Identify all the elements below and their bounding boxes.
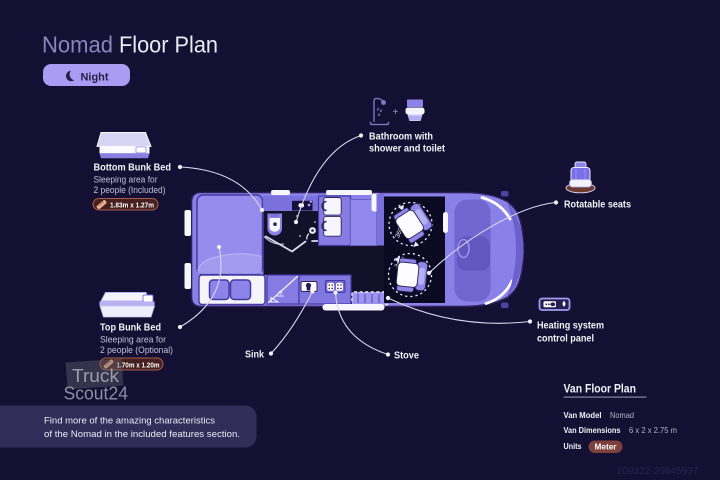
svg-text:2 people (Optional): 2 people (Optional): [100, 345, 173, 355]
svg-text:2 people (Included): 2 people (Included): [94, 185, 166, 195]
svg-text:Night: Night: [81, 72, 109, 84]
svg-text:Scout24: Scout24: [64, 383, 129, 404]
svg-text:of the Nomad in the included f: of the Nomad in the included features se…: [44, 429, 240, 440]
svg-text:control panel: control panel: [537, 334, 594, 345]
svg-text:1.83m x 1.27m: 1.83m x 1.27m: [110, 201, 154, 210]
svg-text:Sleeping area for: Sleeping area for: [100, 335, 166, 345]
svg-text:209322-20845937: 209322-20845937: [617, 466, 699, 477]
svg-text:Sleeping area for: Sleeping area for: [94, 175, 158, 185]
svg-text:NomadFloor Plan: NomadFloor Plan: [42, 32, 218, 58]
svg-text:Van Floor Plan: Van Floor Plan: [564, 382, 637, 396]
svg-text:Sink: Sink: [245, 350, 264, 361]
svg-text:shower and toilet: shower and toilet: [369, 144, 446, 155]
svg-text:Bathroom with: Bathroom with: [369, 132, 433, 143]
svg-text:Bottom Bunk Bed: Bottom Bunk Bed: [94, 163, 172, 174]
svg-text:Stove: Stove: [394, 351, 419, 362]
svg-text:1.70m x 1.20m: 1.70m x 1.20m: [117, 361, 160, 370]
svg-text:Heating system: Heating system: [537, 321, 604, 332]
svg-text:Rotatable seats: Rotatable seats: [564, 200, 631, 211]
svg-text:Van Model: Van Model: [564, 410, 602, 420]
svg-text:6 x 2 x 2.75 m: 6 x 2 x 2.75 m: [629, 425, 677, 435]
svg-text:+: +: [393, 107, 399, 118]
svg-text:Meter: Meter: [595, 443, 617, 452]
svg-text:Van Dimensions: Van Dimensions: [564, 425, 621, 435]
svg-text:Units: Units: [564, 441, 582, 451]
svg-text:Find more of the amazing chara: Find more of the amazing characteristics: [44, 416, 215, 427]
svg-text:Nomad: Nomad: [610, 410, 634, 420]
svg-text:Top Bunk Bed: Top Bunk Bed: [100, 323, 161, 334]
